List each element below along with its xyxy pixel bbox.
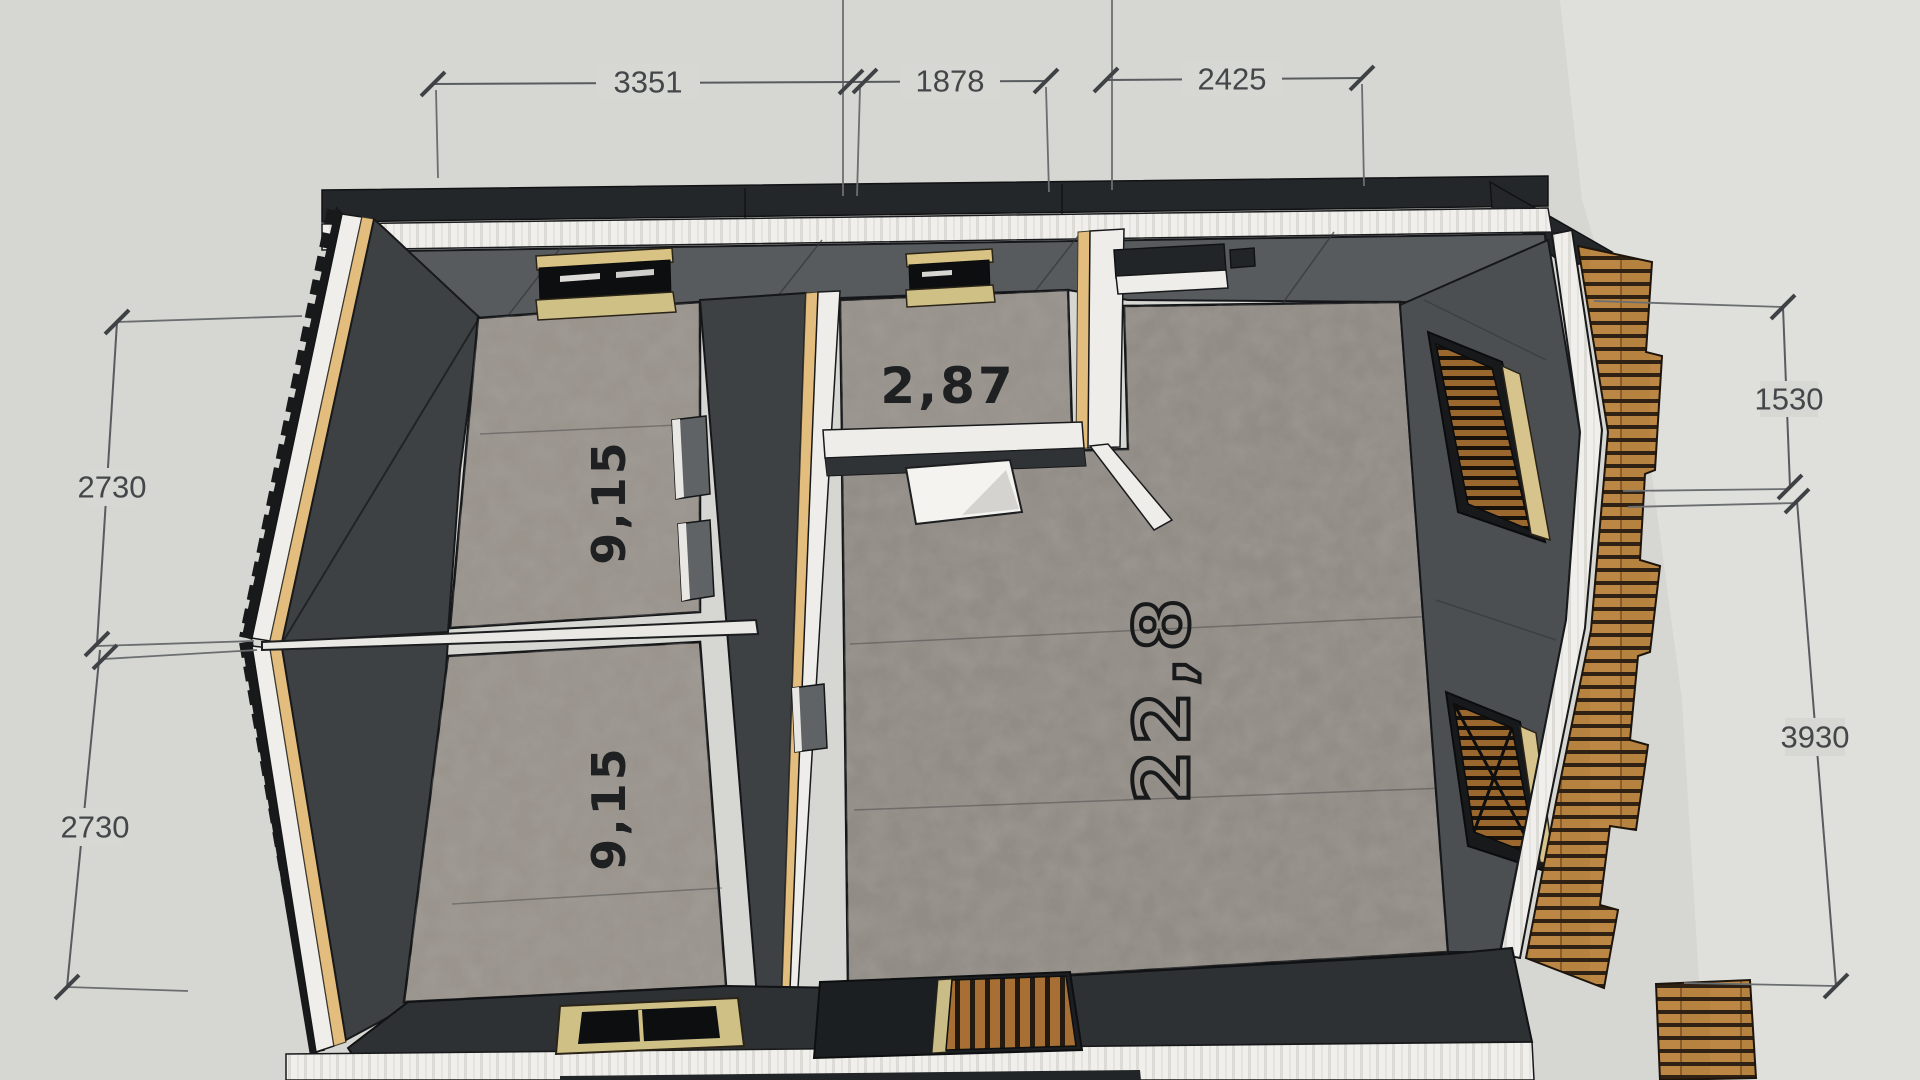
dim-label-right-1: 1530 <box>1755 382 1824 417</box>
floorplan-screenshot: 9,15 9,15 2,87 22,8 <box>0 0 1920 1080</box>
room-label-lower-left: 9,15 <box>582 745 636 871</box>
room-label-living: 22,8 <box>1118 592 1207 804</box>
window-notch <box>1230 248 1255 268</box>
window-lower-left-room <box>556 998 744 1054</box>
window-hallway <box>906 249 995 307</box>
stair-treads <box>946 976 1076 1050</box>
dim-label-left-1: 2730 <box>78 470 147 505</box>
window-mullion <box>640 1010 642 1042</box>
dim-label-right-2: 3930 <box>1781 720 1850 755</box>
window-glass <box>578 1006 720 1044</box>
dim-label-left-2: 2730 <box>61 810 130 845</box>
floorplan-canvas: 9,15 9,15 2,87 22,8 <box>0 0 1920 1080</box>
dim-label-top-1: 3351 <box>614 65 683 100</box>
room-label-hallway: 2,87 <box>880 357 1015 415</box>
dim-label-top-3: 2425 <box>1198 62 1267 97</box>
window-upper-left-room <box>536 248 676 320</box>
stairs <box>814 972 1082 1058</box>
room-label-upper-left: 9,15 <box>582 439 636 565</box>
dim-label-top-2: 1878 <box>916 64 985 99</box>
deck-slats-detached <box>1656 980 1756 1080</box>
